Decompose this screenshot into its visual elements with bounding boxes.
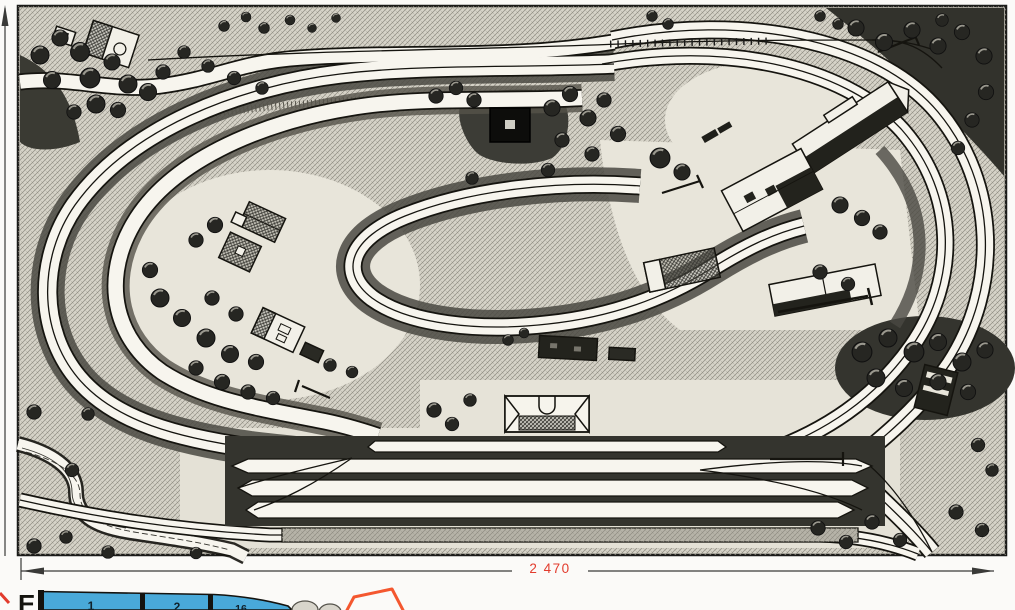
platform-strip [232, 459, 872, 473]
scale-bar [40, 592, 292, 610]
arrow-up-icon [2, 5, 9, 26]
scale-bar-circle [319, 604, 341, 610]
scale-bar-end-cap [38, 590, 44, 610]
scale-bar-divider [140, 593, 145, 610]
goods-shed-island [538, 335, 597, 360]
small-island-shed [609, 347, 636, 360]
arrow-left-icon [22, 568, 44, 575]
scale-bar-divider [208, 595, 213, 610]
scale-bar-circle [292, 601, 318, 610]
station-building [505, 396, 589, 432]
red-corner-mark [0, 593, 9, 603]
scanned-page: 2 470 E 1 2 16 [0, 0, 1015, 610]
plan-caption-letter: E [18, 589, 35, 610]
arrow-right-icon [972, 568, 994, 575]
castle-ruin [490, 108, 530, 142]
station-yard [225, 436, 932, 552]
orange-outline-shape [346, 589, 404, 610]
scale-segment-label: 16 [235, 603, 247, 610]
scale-segment-label: 1 [88, 599, 95, 610]
platform-strip [368, 441, 726, 452]
platform-strip [246, 502, 854, 518]
plan-illustration [18, 6, 1015, 559]
scale-segment-label: 2 [174, 600, 181, 610]
width-dimension-label: 2 470 [529, 561, 570, 576]
caption-and-scale-bar: E 1 2 16 [0, 589, 404, 610]
track-plan-figure: 2 470 E 1 2 16 [0, 0, 1015, 610]
